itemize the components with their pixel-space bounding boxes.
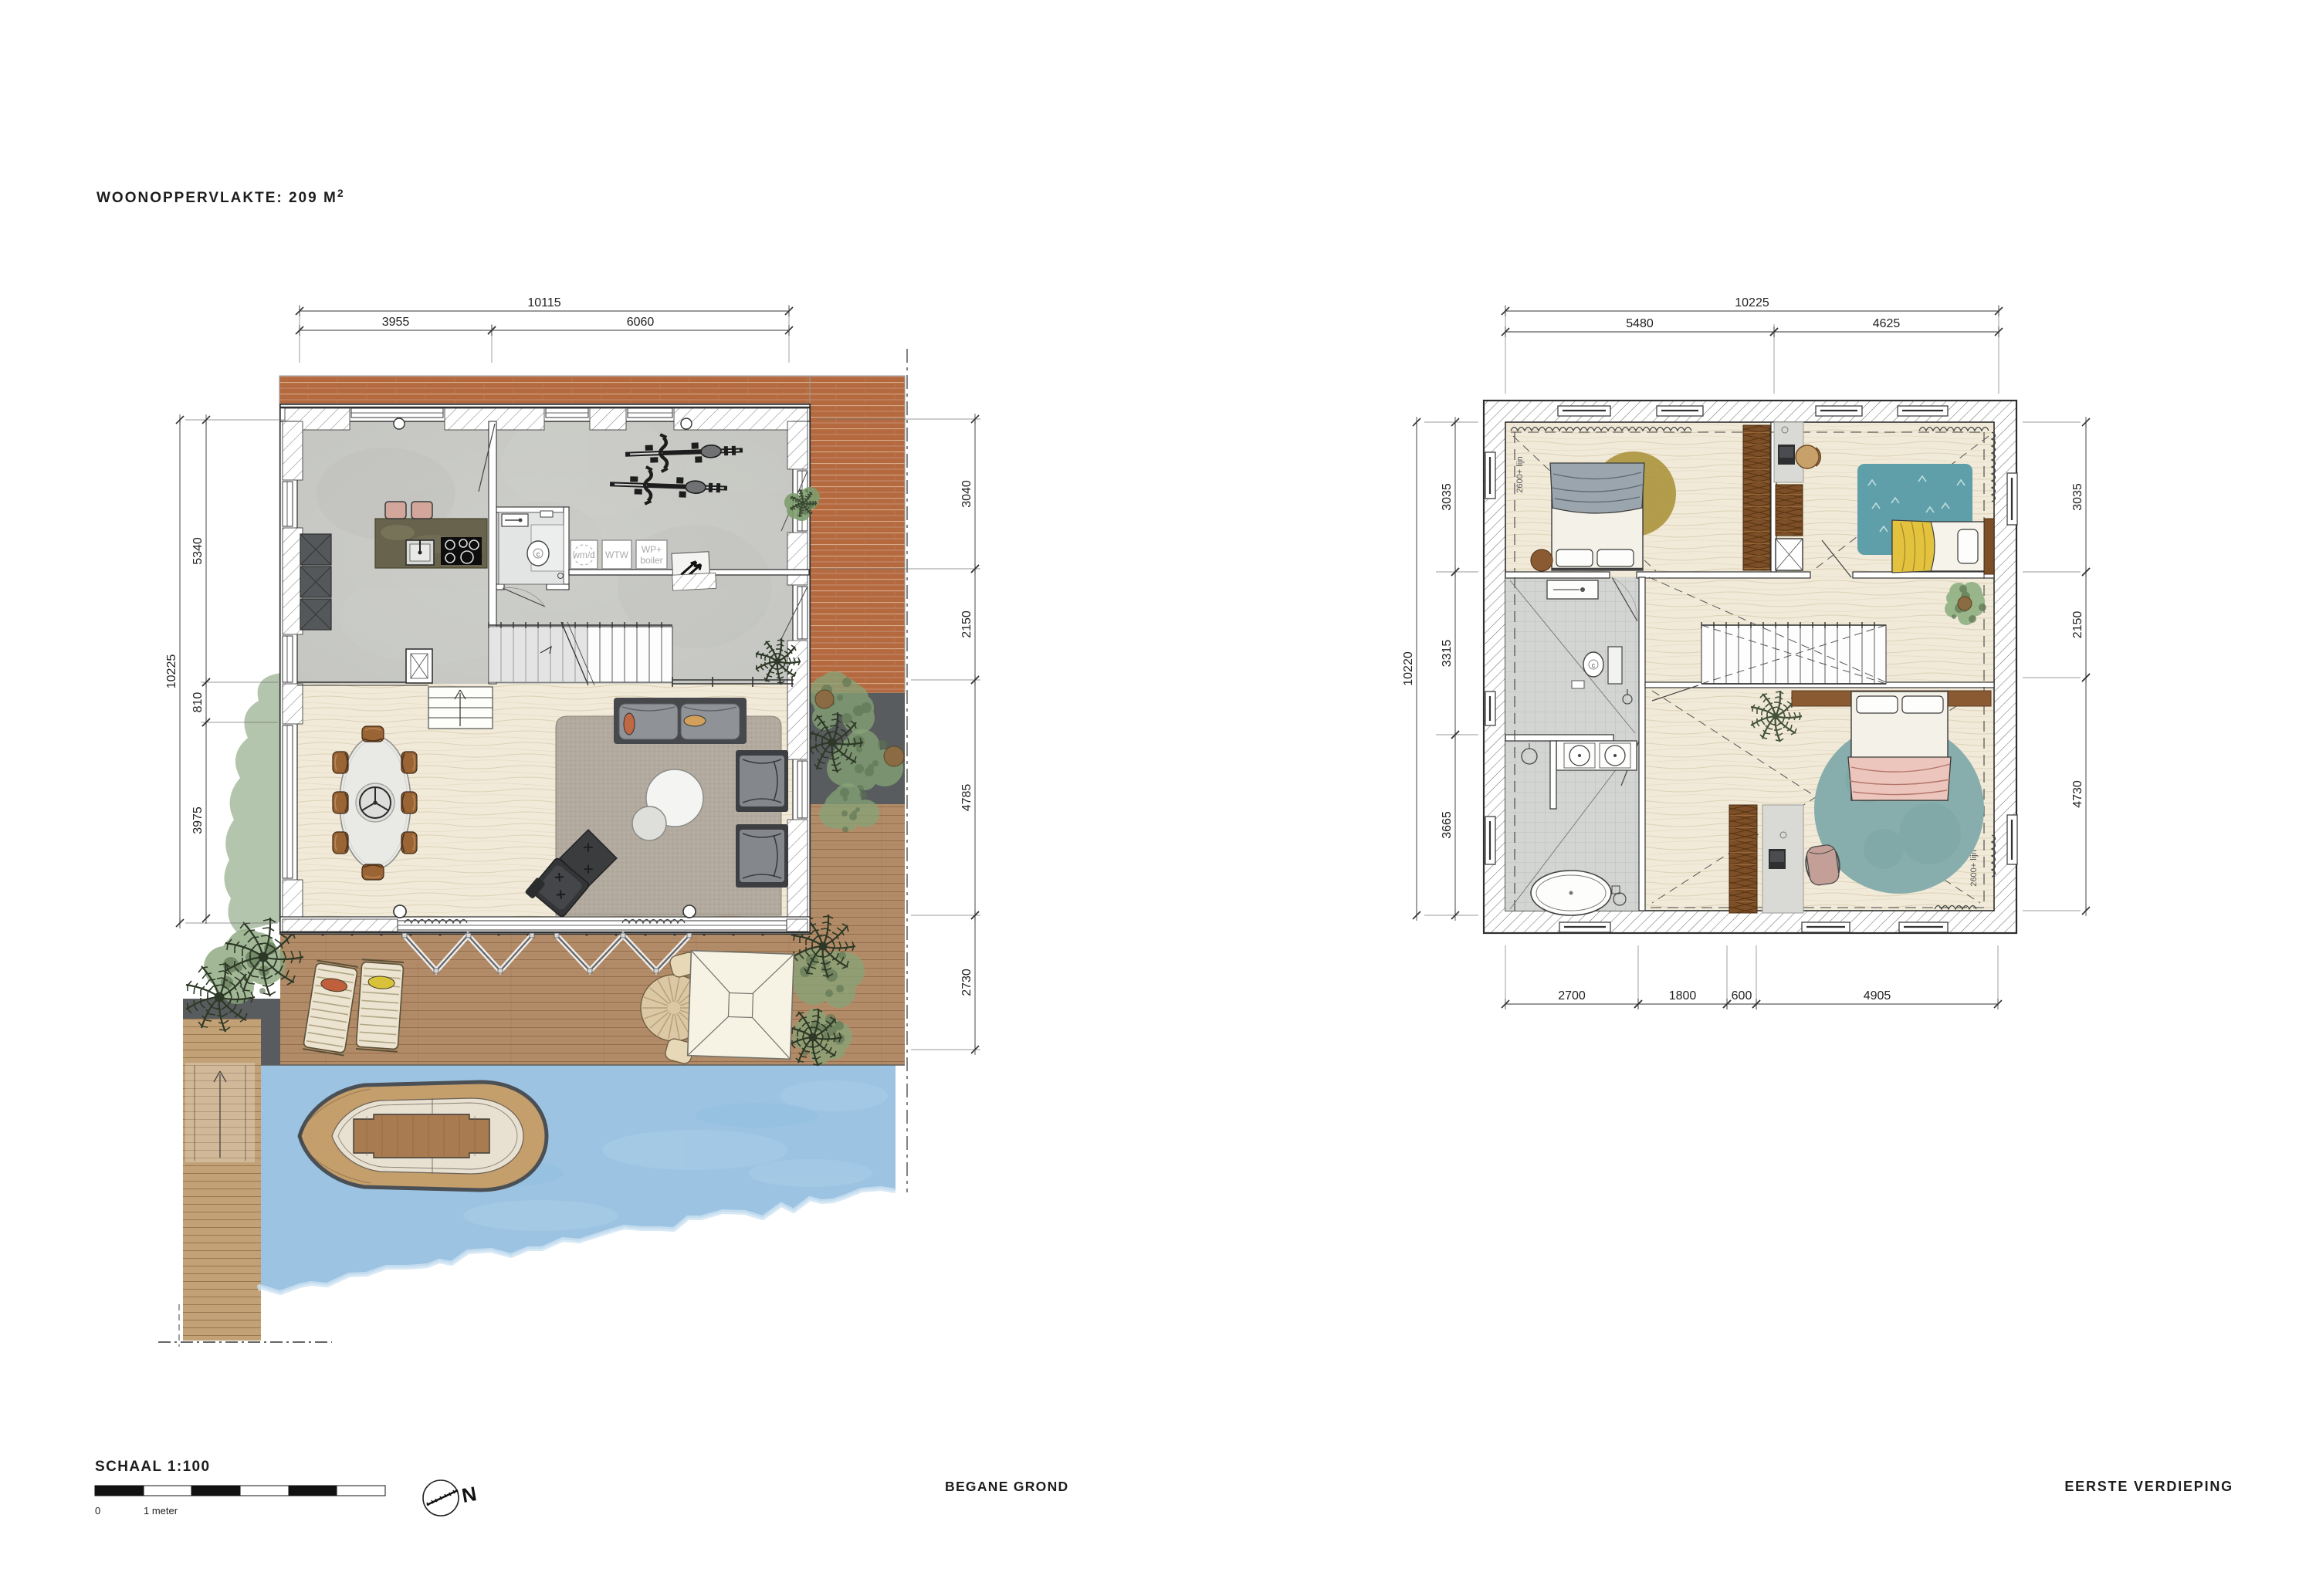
- svg-text:wm/d: wm/d: [572, 549, 595, 560]
- svg-text:3665: 3665: [1441, 811, 1454, 839]
- svg-text:2600+ lijn: 2600+ lijn: [1515, 456, 1525, 492]
- svg-text:3955: 3955: [382, 316, 410, 329]
- svg-text:4785: 4785: [960, 784, 973, 812]
- svg-text:2700: 2700: [1558, 989, 1586, 1003]
- svg-text:4905: 4905: [1864, 989, 1891, 1003]
- svg-text:1 meter: 1 meter: [144, 1505, 178, 1517]
- svg-text:810: 810: [191, 692, 205, 713]
- svg-text:0: 0: [95, 1505, 100, 1517]
- svg-text:5480: 5480: [1626, 317, 1654, 330]
- svg-text:3315: 3315: [1441, 640, 1454, 668]
- svg-text:BEGANE GROND: BEGANE GROND: [945, 1479, 1068, 1494]
- svg-text:c: c: [537, 550, 540, 558]
- svg-text:WOONOPPERVLAKTE: 209 M2: WOONOPPERVLAKTE: 209 M2: [96, 187, 345, 206]
- svg-text:10225: 10225: [1735, 296, 1769, 309]
- svg-text:c: c: [1592, 661, 1596, 669]
- svg-text:10115: 10115: [527, 296, 560, 309]
- svg-text:2150: 2150: [960, 610, 973, 638]
- svg-text:WTW: WTW: [605, 549, 629, 560]
- svg-text:EERSTE VERDIEPING: EERSTE VERDIEPING: [2064, 1479, 2233, 1494]
- svg-text:4730: 4730: [2071, 780, 2084, 808]
- svg-text:600: 600: [1732, 989, 1752, 1003]
- svg-text:2600+ lijn: 2600+ lijn: [1969, 850, 1979, 886]
- svg-text:3035: 3035: [1441, 483, 1454, 511]
- svg-text:2150: 2150: [2071, 611, 2084, 639]
- svg-text:4625: 4625: [1873, 317, 1901, 330]
- svg-text:boiler: boiler: [640, 555, 662, 566]
- svg-text:6060: 6060: [627, 316, 655, 329]
- svg-text:3975: 3975: [191, 806, 205, 834]
- svg-text:1800: 1800: [1669, 989, 1697, 1003]
- svg-text:WP+: WP+: [642, 544, 662, 555]
- svg-text:3035: 3035: [2071, 483, 2084, 511]
- svg-text:10225: 10225: [165, 654, 178, 689]
- svg-text:10220: 10220: [1402, 651, 1415, 686]
- svg-text:5340: 5340: [191, 537, 205, 565]
- svg-text:SCHAAL 1:100: SCHAAL 1:100: [95, 1459, 211, 1475]
- svg-text:2730: 2730: [960, 969, 973, 996]
- svg-text:3040: 3040: [960, 480, 973, 508]
